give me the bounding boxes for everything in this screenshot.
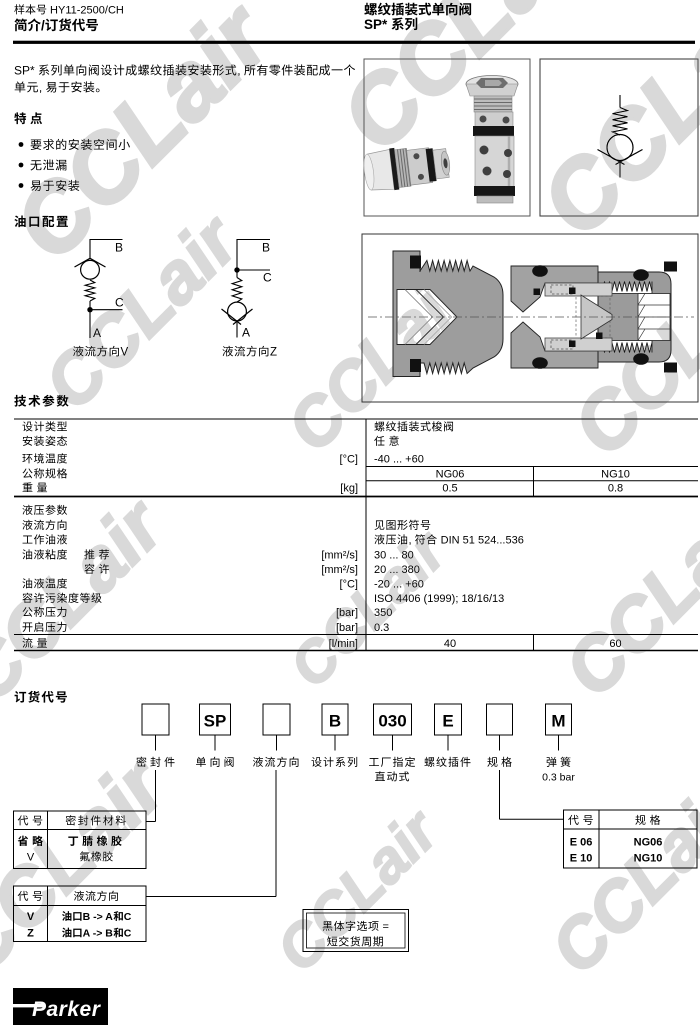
svg-text:HY11-2500/CH: HY11-2500/CH	[47, 5, 124, 17]
svg-text:030: 030	[378, 712, 406, 731]
svg-text:[mm²/s]: [mm²/s]	[321, 550, 358, 562]
svg-text:NG06: NG06	[436, 469, 465, 481]
svg-text:-40 ... +60: -40 ... +60	[374, 454, 424, 466]
svg-text:C: C	[124, 911, 132, 923]
svg-text:M: M	[551, 712, 565, 731]
svg-text:0.3 bar: 0.3 bar	[542, 772, 575, 784]
svg-text:=: =	[380, 921, 389, 933]
svg-text:E 10: E 10	[570, 853, 593, 865]
svg-text:[°C]: [°C]	[340, 454, 358, 466]
svg-text:A -> B: A -> B	[83, 928, 114, 940]
svg-text:SP*: SP*	[14, 64, 38, 78]
svg-text:0.8: 0.8	[608, 483, 623, 495]
svg-text:B -> A: B -> A	[83, 911, 114, 923]
svg-text:B: B	[329, 712, 341, 731]
svg-text:SP: SP	[204, 712, 227, 731]
svg-text:40: 40	[444, 638, 456, 650]
svg-text:E: E	[442, 712, 453, 731]
svg-text:A: A	[242, 326, 250, 340]
svg-text:Parker: Parker	[32, 998, 102, 1021]
svg-text:Z: Z	[270, 347, 277, 359]
svg-text:C: C	[263, 271, 272, 285]
svg-text:B: B	[262, 241, 270, 255]
svg-text:,: ,	[39, 81, 46, 95]
svg-text:[kg]: [kg]	[340, 483, 358, 495]
svg-text:B: B	[115, 241, 123, 255]
svg-text:/: /	[41, 18, 45, 33]
svg-text:0.5: 0.5	[442, 483, 457, 495]
svg-text:DIN 51 524...536: DIN 51 524...536	[438, 535, 524, 547]
svg-text:C: C	[124, 928, 132, 940]
svg-text:E 06: E 06	[570, 837, 593, 849]
svg-text:[mm²/s]: [mm²/s]	[321, 564, 358, 576]
